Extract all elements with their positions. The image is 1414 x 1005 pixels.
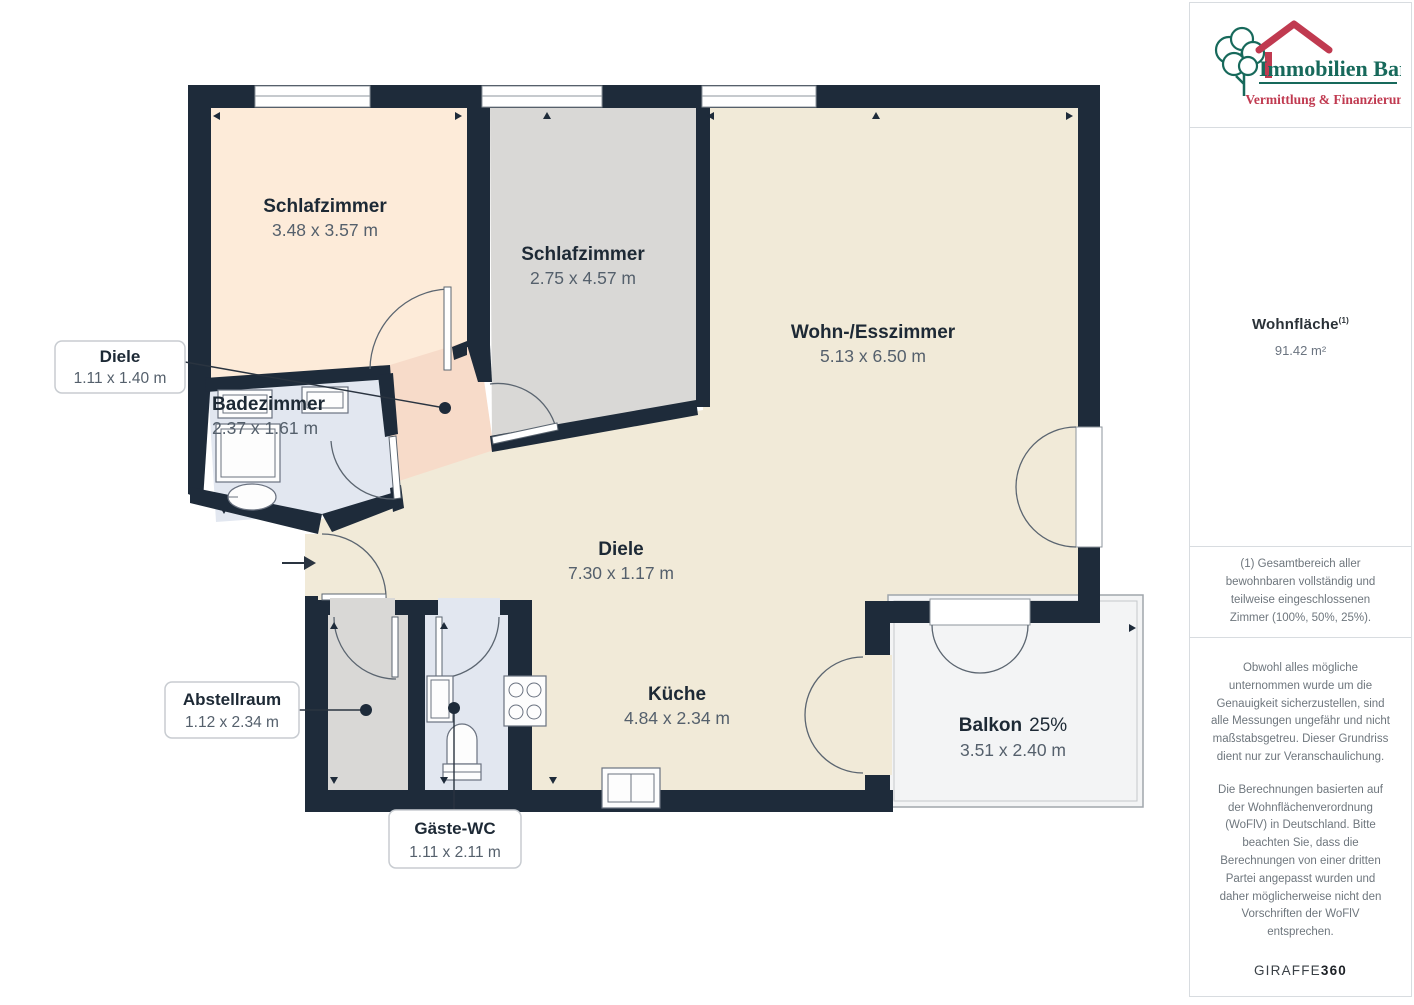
footnote-text: (1) Gesamtbereich aller bewohnbaren voll… bbox=[1214, 556, 1387, 627]
giraffe360-logo: GIRAFFE360 bbox=[1210, 961, 1391, 982]
tree-trunk bbox=[1236, 74, 1244, 96]
window-schlafzimmer-1 bbox=[255, 86, 370, 107]
callout-abstellraum-dims: 1.12 x 2.34 m bbox=[185, 714, 279, 731]
callout-gaeste-wc-dims: 1.11 x 2.11 m bbox=[409, 844, 501, 861]
living-area-section: Wohnfläche(1) 91.42 m² bbox=[1190, 128, 1411, 547]
dims-wohnesszimmer: 5.13 x 6.50 m bbox=[820, 346, 926, 366]
kitchen-sink-icon bbox=[602, 768, 660, 808]
floor-plan: Schlafzimmer 3.48 x 3.57 m Schlafzimmer … bbox=[0, 0, 1190, 1000]
callout-diele-klein-dims: 1.11 x 1.40 m bbox=[74, 370, 167, 387]
disclaimer-accuracy: Obwohl alles mögliche unternommen wurde … bbox=[1210, 660, 1391, 767]
label-diele: Diele bbox=[598, 539, 643, 560]
label-balkon: Balkon25% bbox=[959, 715, 1067, 736]
dims-schlafzimmer-1: 3.48 x 3.57 m bbox=[272, 220, 378, 240]
label-schlafzimmer-1: Schlafzimmer bbox=[263, 196, 387, 217]
company-tagline: Vermittlung & Finanzierung bbox=[1245, 92, 1401, 107]
disclaimer-section: Obwohl alles mögliche unternommen wurde … bbox=[1190, 638, 1411, 996]
dims-schlafzimmer-2: 2.75 x 4.57 m bbox=[530, 268, 636, 288]
roof-icon bbox=[1259, 24, 1329, 50]
label-badezimmer: Badezimmer bbox=[212, 394, 326, 415]
toilet-icon bbox=[228, 484, 276, 510]
window-schlafzimmer-2 bbox=[482, 86, 602, 107]
label-wohnesszimmer: Wohn-/Esszimmer bbox=[791, 322, 956, 343]
room-schlafzimmer-1-floor bbox=[206, 107, 467, 386]
wc-sink-icon bbox=[427, 676, 453, 722]
living-area-value: 91.42 m² bbox=[1275, 343, 1326, 358]
dims-diele: 7.30 x 1.17 m bbox=[568, 563, 674, 583]
dims-badezimmer: 2.37 x 1.61 m bbox=[212, 418, 318, 438]
dims-kueche: 4.84 x 2.34 m bbox=[624, 708, 730, 728]
callout-diele-klein-label: Diele bbox=[100, 347, 141, 366]
label-schlafzimmer-2: Schlafzimmer bbox=[521, 244, 645, 265]
callout-gaeste-wc-label: Gäste-WC bbox=[414, 819, 495, 838]
wc-toilet-icon bbox=[443, 724, 481, 780]
window-wohnzimmer bbox=[702, 86, 816, 107]
company-name: Immobilien Bart bbox=[1259, 56, 1401, 81]
disclaimer-woflv: Die Berechnungen basierten auf der Wohnf… bbox=[1210, 782, 1391, 942]
company-logo: Immobilien Bart Vermittlung & Finanzieru… bbox=[1190, 3, 1411, 128]
label-kueche: Küche bbox=[648, 684, 706, 705]
windows bbox=[255, 86, 816, 107]
living-area-label: Wohnfläche(1) bbox=[1252, 316, 1349, 333]
dims-balkon: 3.51 x 2.40 m bbox=[960, 740, 1066, 760]
callout-abstellraum-label: Abstellraum bbox=[183, 690, 281, 709]
stove-icon bbox=[504, 676, 546, 726]
footnote-section: (1) Gesamtbereich aller bewohnbaren voll… bbox=[1190, 547, 1411, 638]
footnote-marker: (1) bbox=[1339, 316, 1349, 325]
info-sidebar: Immobilien Bart Vermittlung & Finanzieru… bbox=[1189, 2, 1412, 997]
balcony-outline bbox=[888, 595, 1143, 807]
